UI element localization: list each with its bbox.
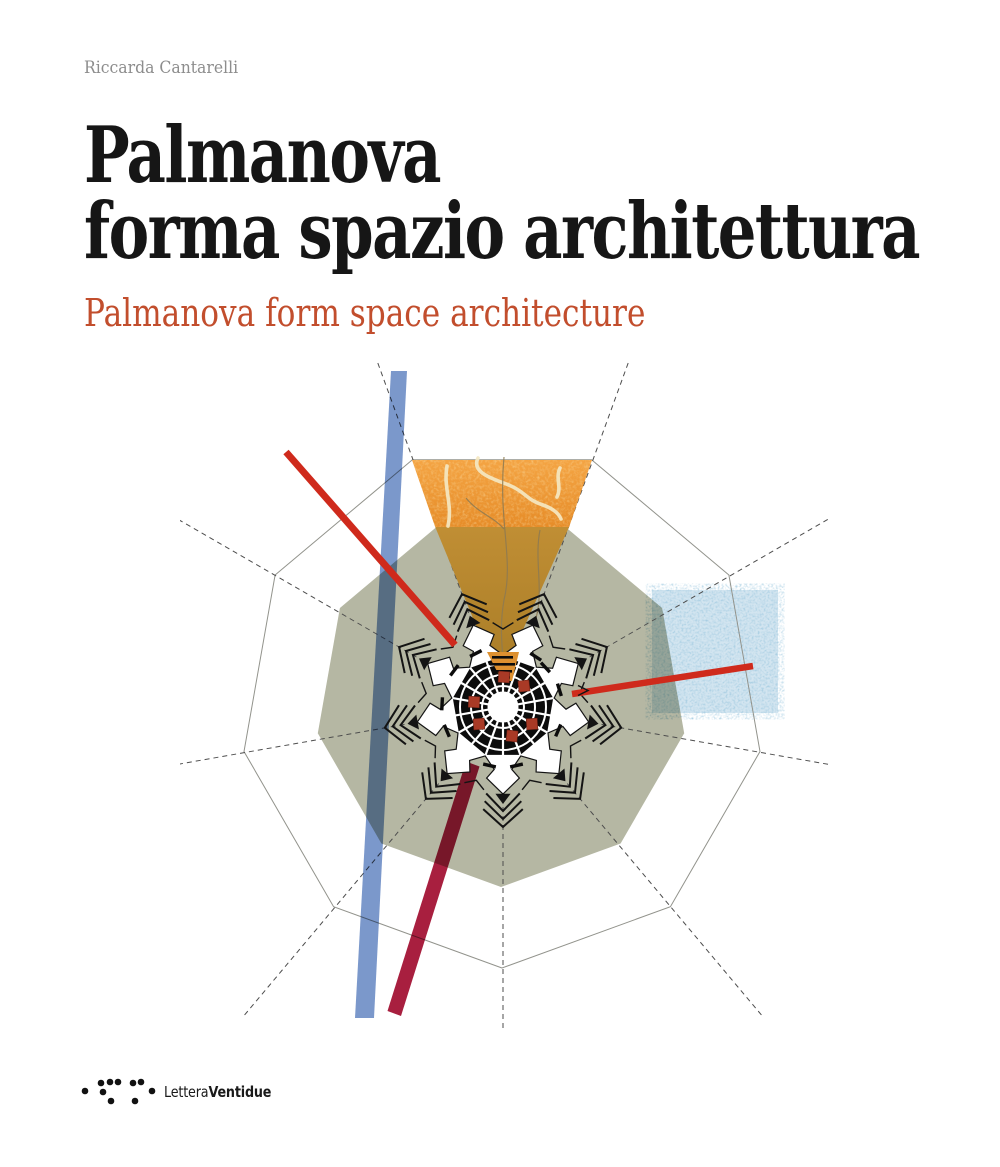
- subtitle: Palmanova form space architecture: [84, 293, 769, 333]
- publisher-name: LetteraVentidue: [164, 1082, 290, 1102]
- blue-texture-square: [652, 590, 778, 713]
- radial-dashed-line: [567, 784, 763, 1018]
- subtitle-text: Palmanova form space architecture: [84, 293, 645, 333]
- landmark-square: [526, 718, 538, 730]
- braille-dots-icon: [78, 1076, 162, 1108]
- landmark-square: [518, 680, 530, 692]
- author-name: Riccarda Cantarelli: [84, 58, 252, 78]
- landmark-square: [498, 671, 510, 683]
- palmanova-fort-diagram: [180, 360, 830, 1030]
- book-title: Palmanova forma spazio architettura: [84, 118, 1000, 270]
- author-name-text: Riccarda Cantarelli: [84, 58, 238, 78]
- wedge-texture: [410, 455, 594, 530]
- publisher-name-bold: Ventidue: [208, 1083, 271, 1101]
- landmark-square: [506, 730, 518, 742]
- publisher-name-regular: Lettera: [164, 1083, 208, 1101]
- title-line-1: Palmanova: [84, 118, 1000, 194]
- block-dash: [490, 663, 515, 666]
- wedge-mottle: [410, 455, 594, 530]
- book-cover: Riccarda Cantarelli Palmanova forma spaz…: [0, 0, 1000, 1167]
- block-dash: [492, 656, 513, 659]
- landmark-square: [468, 696, 480, 708]
- title-line-2: forma spazio architettura: [84, 194, 1000, 270]
- marble-vein: [557, 468, 560, 497]
- landmark-square: [473, 718, 485, 730]
- blue-square-speckle: [652, 590, 778, 713]
- central-plaza: [488, 692, 519, 723]
- block-dash: [440, 697, 444, 710]
